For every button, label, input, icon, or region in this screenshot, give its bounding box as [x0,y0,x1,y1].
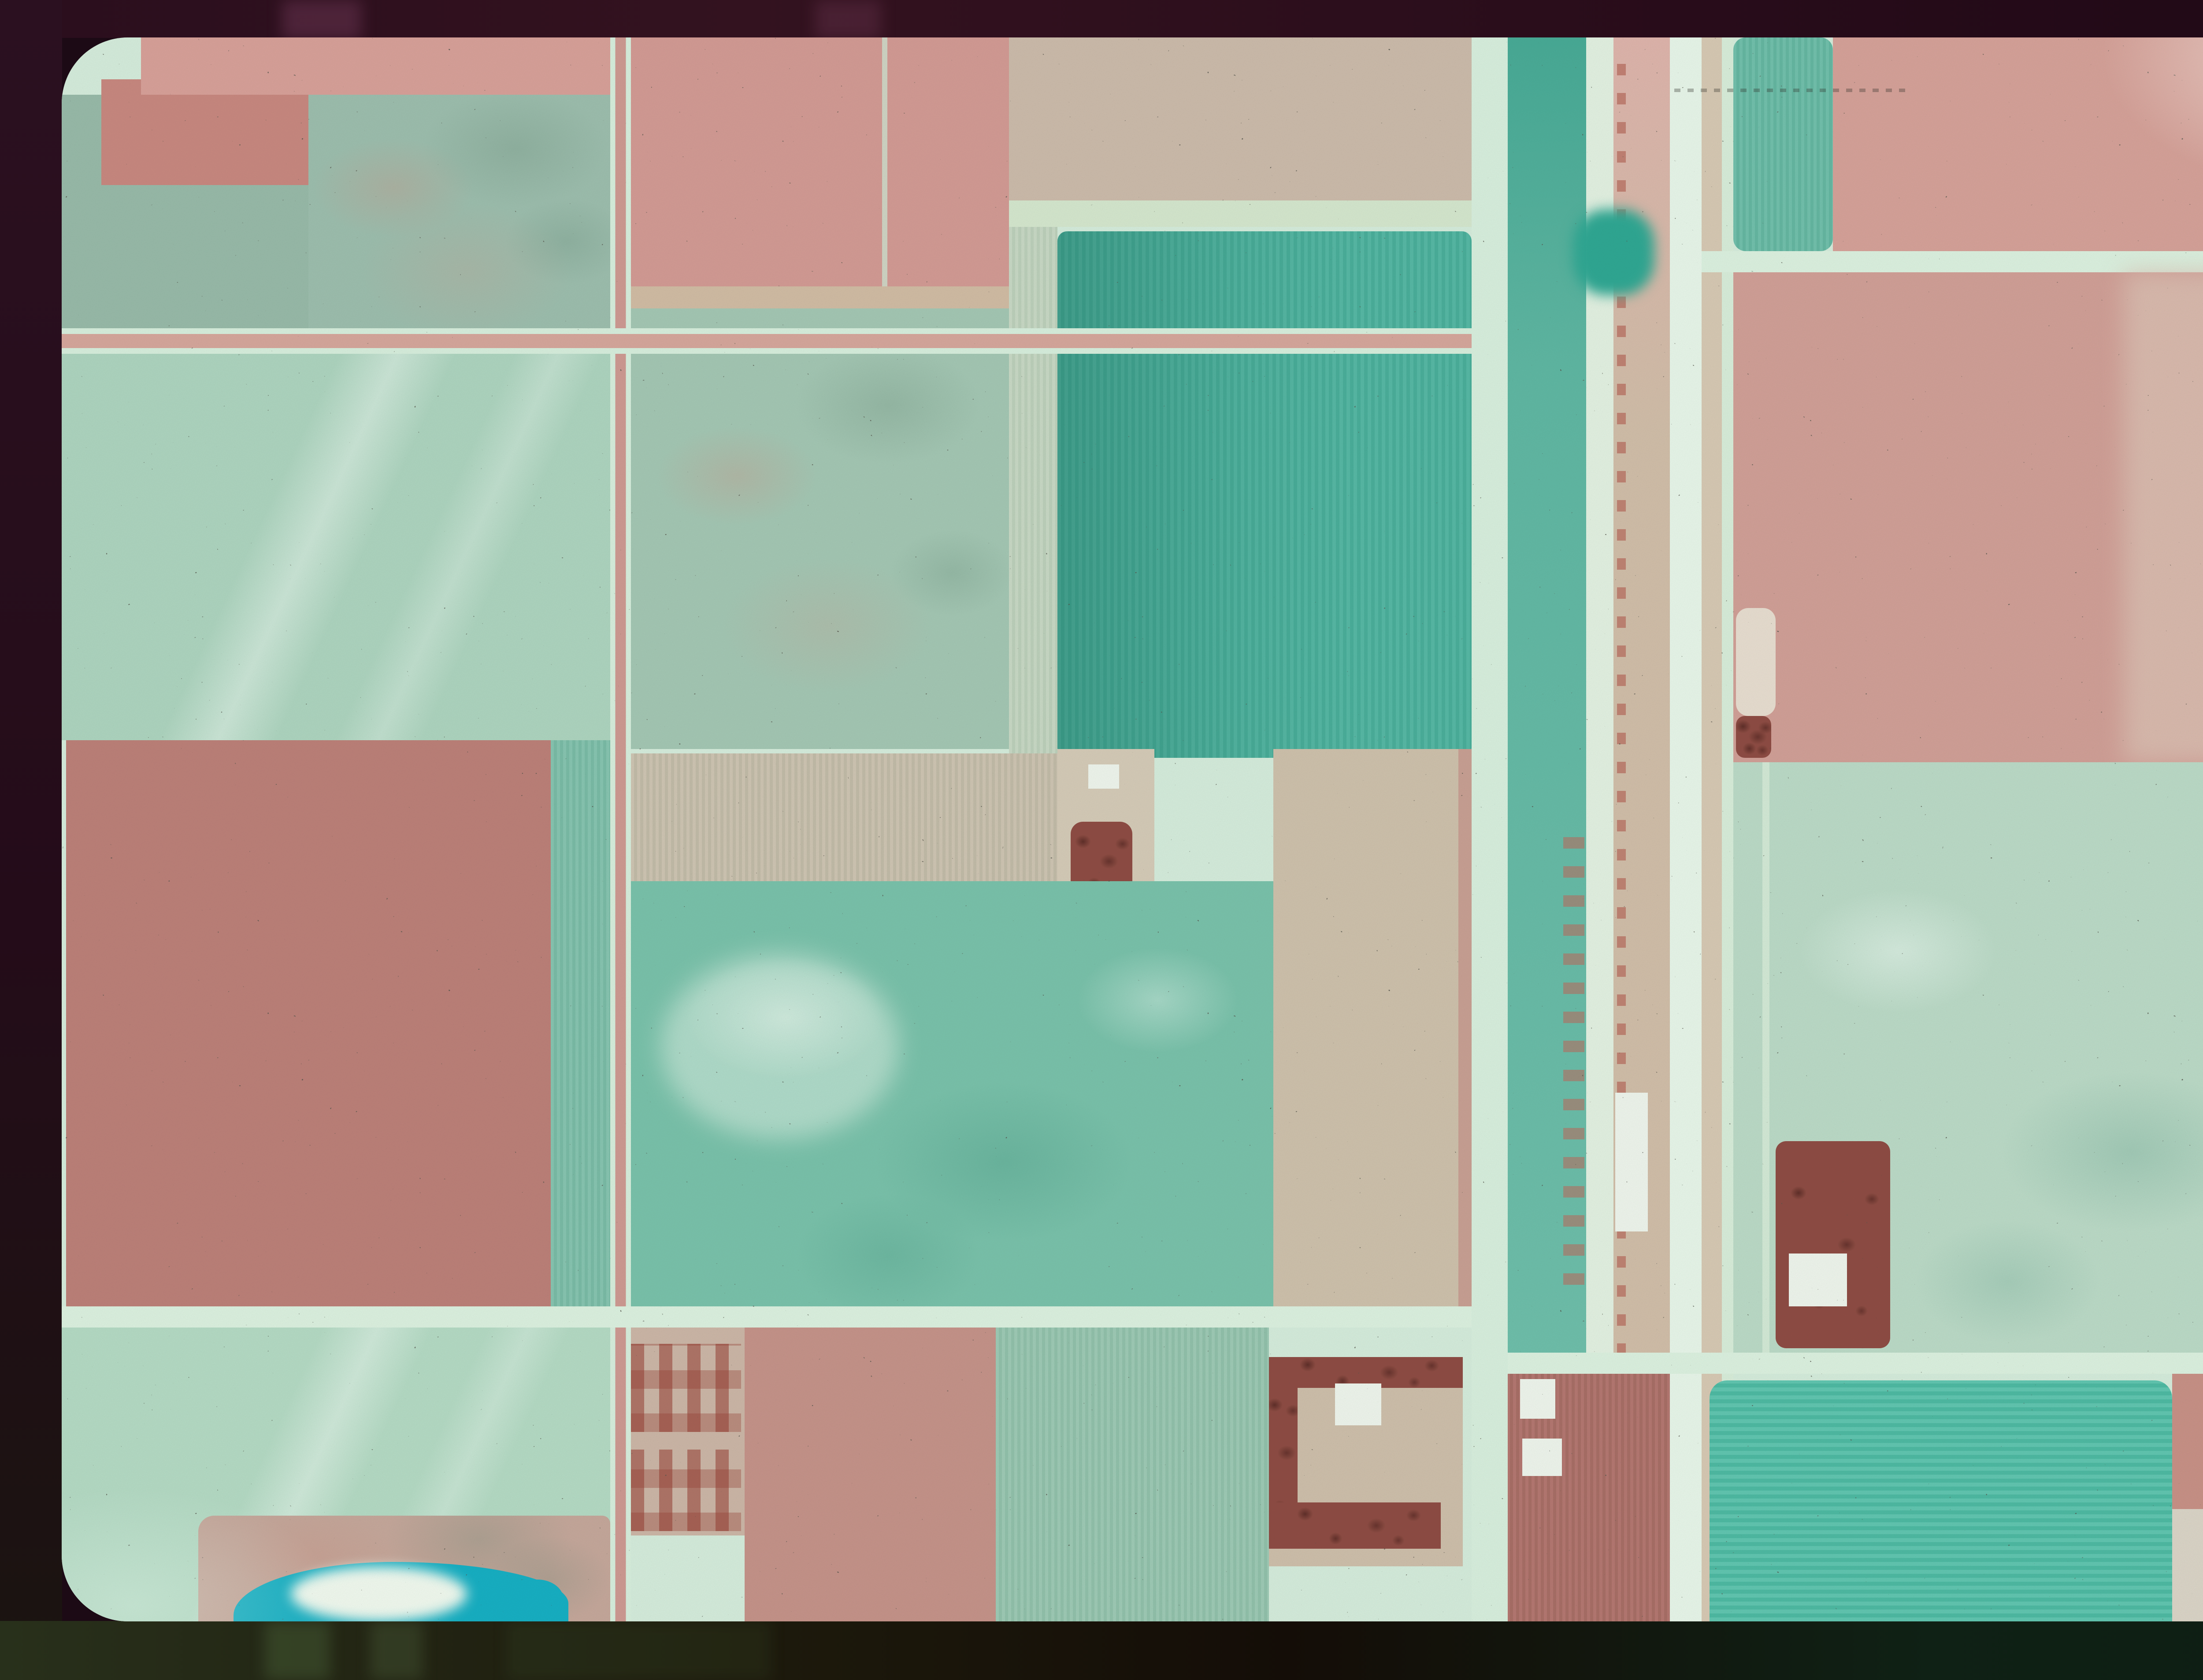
film-scratch-streak [264,1621,330,1680]
film-slide-scan [0,0,2203,1680]
aerial-photograph [62,37,2203,1621]
film-scratch-streak [370,1621,423,1680]
film-scratch-streak [815,0,881,40]
film-border-left [0,0,62,1680]
dust-specks-overlay [62,37,2203,1621]
film-scratch-streak [507,1621,771,1680]
film-scratch-streak [282,0,361,40]
film-border-bottom [0,1621,2203,1680]
